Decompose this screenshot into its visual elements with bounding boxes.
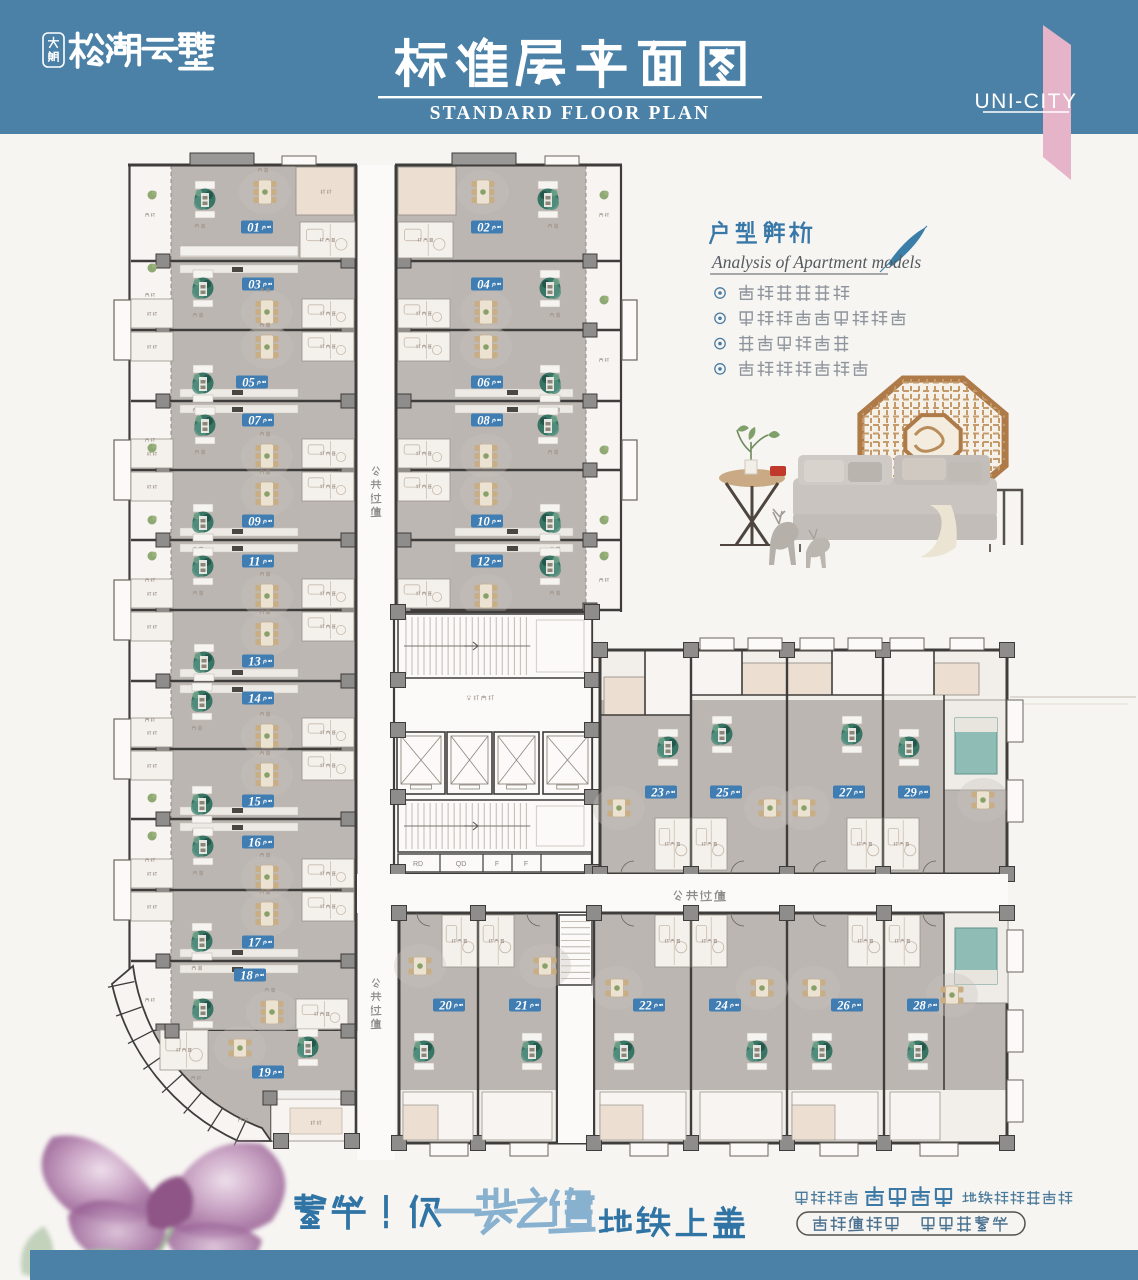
svg-text:09: 09 xyxy=(248,515,261,529)
svg-text:15: 15 xyxy=(248,795,261,809)
svg-text:Analysis of Apartment models: Analysis of Apartment models xyxy=(711,252,921,272)
svg-text:QD: QD xyxy=(456,861,467,868)
svg-text:16: 16 xyxy=(248,836,261,850)
svg-text:STANDARD FLOOR PLAN: STANDARD FLOOR PLAN xyxy=(430,103,711,124)
svg-text:07: 07 xyxy=(248,414,261,428)
svg-text:02: 02 xyxy=(477,221,490,235)
svg-text:28: 28 xyxy=(912,999,926,1013)
svg-text:03: 03 xyxy=(248,278,261,292)
svg-text:14: 14 xyxy=(248,692,261,706)
svg-text:29: 29 xyxy=(903,786,917,800)
svg-text:23: 23 xyxy=(650,786,664,800)
svg-text:04: 04 xyxy=(477,278,490,292)
svg-text:27: 27 xyxy=(838,786,852,800)
svg-text:05: 05 xyxy=(242,376,255,390)
svg-text:22: 22 xyxy=(638,999,652,1013)
svg-text:11: 11 xyxy=(249,555,261,569)
svg-text:F: F xyxy=(524,861,528,868)
svg-text:20: 20 xyxy=(438,999,452,1013)
svg-text:F: F xyxy=(495,861,499,868)
svg-text:19: 19 xyxy=(258,1066,271,1080)
svg-text:10: 10 xyxy=(477,515,490,529)
svg-text:12: 12 xyxy=(477,555,490,569)
svg-text:25: 25 xyxy=(715,786,729,800)
svg-text:08: 08 xyxy=(477,414,490,428)
svg-text:06: 06 xyxy=(477,376,490,390)
svg-text:UNI-CITY: UNI-CITY xyxy=(975,90,1078,113)
svg-text:26: 26 xyxy=(836,999,850,1013)
svg-text:RD: RD xyxy=(413,861,423,868)
svg-text:24: 24 xyxy=(714,999,728,1013)
svg-text:13: 13 xyxy=(248,655,261,669)
svg-text:21: 21 xyxy=(514,999,528,1013)
svg-text:01: 01 xyxy=(247,221,260,235)
svg-text:17: 17 xyxy=(248,936,261,950)
svg-text:18: 18 xyxy=(240,969,253,983)
